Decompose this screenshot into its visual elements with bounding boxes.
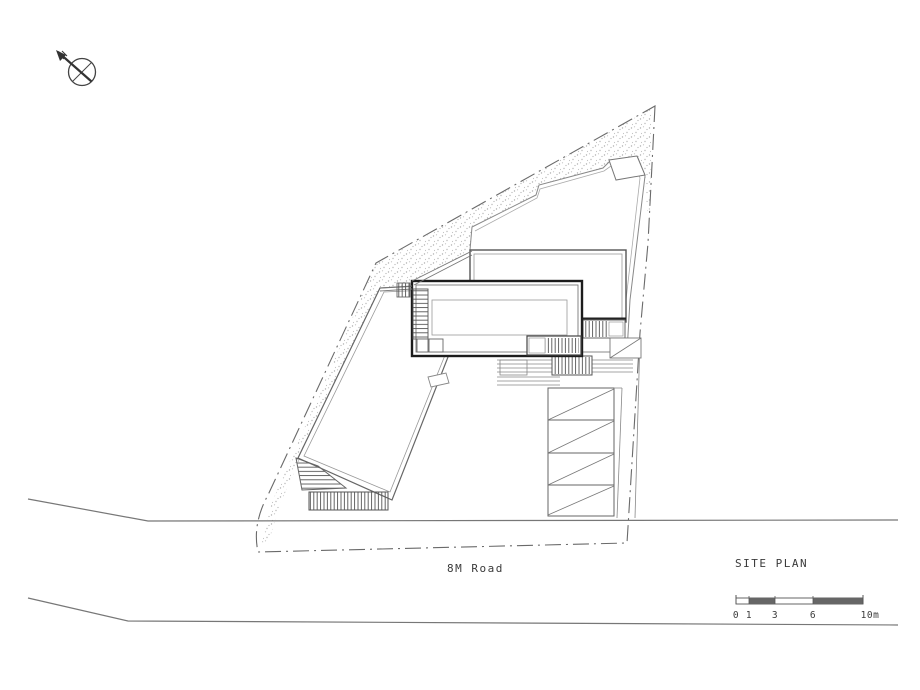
scale-bar: 0 1 3 6 10m xyxy=(733,595,879,621)
scale-label-1: 1 xyxy=(746,610,752,621)
ramp xyxy=(548,388,622,518)
landing-box xyxy=(500,360,527,375)
ramp-outline xyxy=(548,388,614,516)
scale-bar-fill-6-10 xyxy=(813,598,863,604)
road-label: 8M Road xyxy=(447,562,504,575)
scale-label-10m: 10m xyxy=(861,610,880,621)
main-building-roof xyxy=(412,281,582,356)
road-edge-upper xyxy=(28,499,898,521)
annex-stair-hatch xyxy=(585,321,607,337)
main-left-stair-hatch xyxy=(413,289,428,339)
site-plan-drawing: 8M Road SITE PLAN 0 1 3 6 10m xyxy=(0,0,920,690)
scale-bar-fill-1-3 xyxy=(749,598,775,604)
ramp-edge-strip xyxy=(617,388,622,518)
road-steps-hatch xyxy=(309,492,388,510)
exterior-stair-hatch xyxy=(397,283,410,297)
main-left-small-box xyxy=(417,339,428,352)
scale-label-3: 3 xyxy=(772,610,778,621)
drawing-title: SITE PLAN xyxy=(735,557,808,570)
north-arrow xyxy=(56,50,96,86)
lower-stair-hatch xyxy=(554,357,590,374)
main-bottom-stair-hatch xyxy=(545,338,579,353)
scale-label-6: 6 xyxy=(810,610,816,621)
scale-label-0: 0 xyxy=(733,610,739,621)
main-left-notch-box xyxy=(429,339,443,352)
site-plan-sheet: 8M Road SITE PLAN 0 1 3 6 10m xyxy=(0,0,920,690)
